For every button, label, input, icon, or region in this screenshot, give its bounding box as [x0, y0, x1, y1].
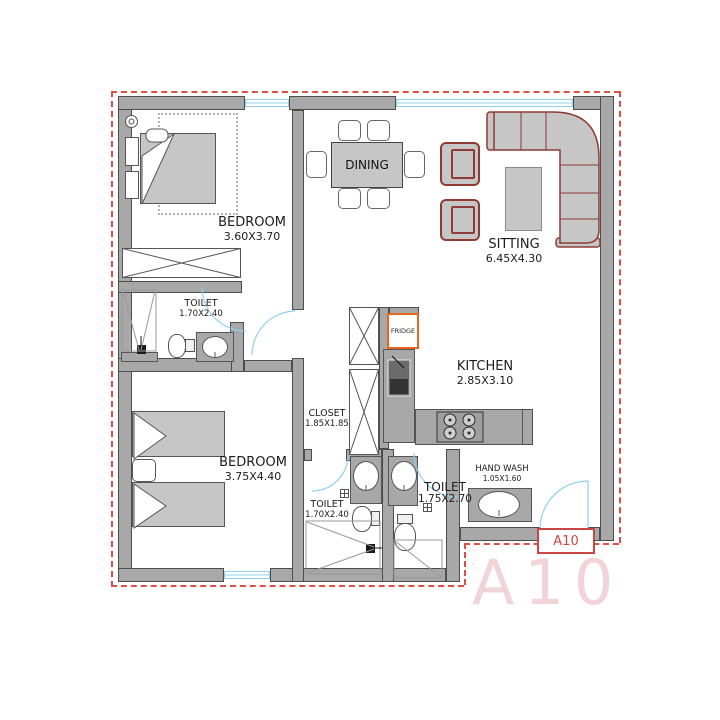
corner-lamp: [125, 115, 138, 128]
cistern-toilet1: [185, 339, 195, 352]
bedroom2-dims: 3.75X4.40: [219, 471, 287, 483]
fridge-label: FRIDGE: [391, 327, 415, 335]
sofa-l-shape: [487, 112, 600, 247]
kitchen-bottom-counter: [415, 409, 523, 445]
wall-toilet2-top-a: [304, 449, 312, 461]
closet-unit-b: [350, 370, 379, 455]
bedroom1-name: BEDROOM: [218, 216, 286, 231]
toilet1-dims: 1.70X2.40: [179, 310, 223, 320]
dining-label: DINING: [345, 158, 389, 172]
bedroom1-dims: 3.60X3.70: [218, 231, 286, 243]
closet-dims: 1.85X1.85: [305, 420, 349, 430]
bedroom2-name: BEDROOM: [219, 456, 287, 471]
door-arc-bedroom2: [252, 311, 295, 355]
wall-exterior-top-b: [289, 96, 396, 110]
wall-bedroom2-right: [292, 358, 304, 582]
floor-drain-toilet2: [340, 489, 349, 498]
door-arc-entry: [540, 481, 588, 529]
armchair-2: [440, 199, 480, 241]
label-kitchen: KITCHEN 2.85X3.10: [457, 360, 514, 387]
dining-chair-bottom-2: [367, 188, 390, 209]
wall-entry-bottom: [460, 527, 540, 541]
unit-door-tag-text: A10: [553, 534, 578, 549]
dining-chair-top-1: [338, 120, 361, 141]
cistern-toilet3: [397, 514, 413, 524]
sitting-name: SITTING: [486, 238, 543, 253]
bed-twin-1: [132, 411, 225, 457]
wc-toilet3: [394, 523, 416, 551]
wardrobe-bedroom1: [123, 249, 241, 278]
label-bedroom2: BEDROOM 3.75X4.40: [219, 456, 287, 483]
toilet3-name: TOILET: [418, 481, 472, 494]
label-handwash: HAND WASH 1.05X1.60: [475, 465, 528, 483]
floor-plan: A10 DINING: [0, 0, 720, 720]
armchair-1-seat: [451, 149, 475, 179]
shower-head-toilet1: [137, 345, 146, 354]
shower-head-toilet2: [366, 544, 375, 553]
basin-toilet1: [202, 336, 228, 358]
bed-double: [140, 133, 216, 204]
boundary-dash-bottom: [111, 585, 464, 587]
dining-chair-left: [306, 151, 327, 178]
wc-toilet2: [352, 506, 372, 532]
dining-chair-bottom-1: [338, 188, 361, 209]
window-top-sitting: [396, 99, 573, 107]
label-toilet1: TOILET 1.70X2.40: [179, 299, 223, 319]
coffee-table: [505, 167, 542, 231]
kitchen-sink-counter: [383, 349, 415, 443]
label-toilet2: TOILET 1.70X2.40: [305, 500, 349, 520]
dining-chair-right: [404, 151, 425, 178]
nightstand-1: [125, 137, 139, 166]
sitting-dims: 6.45X4.30: [486, 253, 543, 265]
wc-toilet1: [168, 334, 186, 358]
wall-bedroom1-dining: [292, 110, 304, 310]
wall-exterior-bottom-a: [118, 568, 224, 582]
bed-twin-2: [132, 482, 225, 527]
basin-toilet2: [353, 461, 379, 491]
wall-entry-left: [446, 449, 460, 582]
label-toilet3: TOILET 1.75X2.70: [418, 481, 472, 506]
dining-chair-top-2: [367, 120, 390, 141]
nightstand-2: [125, 171, 139, 199]
fridge: FRIDGE: [387, 313, 419, 349]
window-bottom-bedroom2: [224, 571, 270, 579]
unit-door-tag: A10: [537, 528, 595, 554]
wall-exterior-right: [600, 96, 614, 541]
toilet2-dims: 1.70X2.40: [305, 511, 349, 521]
armchair-2-seat: [451, 206, 475, 234]
nightstand-bedroom2: [132, 459, 156, 482]
window-top-bedroom1: [245, 99, 289, 107]
kitchen-dims: 2.85X3.10: [457, 375, 514, 387]
dining-table: DINING: [331, 142, 403, 188]
boundary-dash-step-v: [464, 543, 466, 585]
handwash-dims: 1.05X1.60: [475, 475, 528, 483]
closet-unit-a: [350, 308, 379, 365]
boundary-dash-top: [111, 91, 620, 93]
wall-exterior-left: [118, 96, 132, 582]
kitchen-name: KITCHEN: [457, 360, 514, 375]
wall-toilet1-bedroom2-b: [244, 360, 292, 372]
label-bedroom1: BEDROOM 3.60X3.70: [218, 216, 286, 243]
label-sitting: SITTING 6.45X4.30: [486, 238, 543, 265]
cistern-toilet2: [371, 511, 380, 526]
door-arc-toilet2: [312, 455, 348, 491]
boundary-dash-left: [111, 91, 113, 587]
armchair-1: [440, 142, 480, 186]
wall-bedroom1-bottom: [118, 281, 242, 293]
basin-handwash: [478, 491, 520, 518]
basin-toilet3: [391, 461, 417, 491]
wall-exterior-top-a: [118, 96, 245, 110]
label-closet: CLOSET 1.85X1.85: [305, 409, 349, 429]
boundary-dash-right: [619, 91, 621, 543]
unit-watermark: A10: [472, 546, 623, 619]
toilet3-dims: 1.75X2.70: [418, 494, 472, 506]
